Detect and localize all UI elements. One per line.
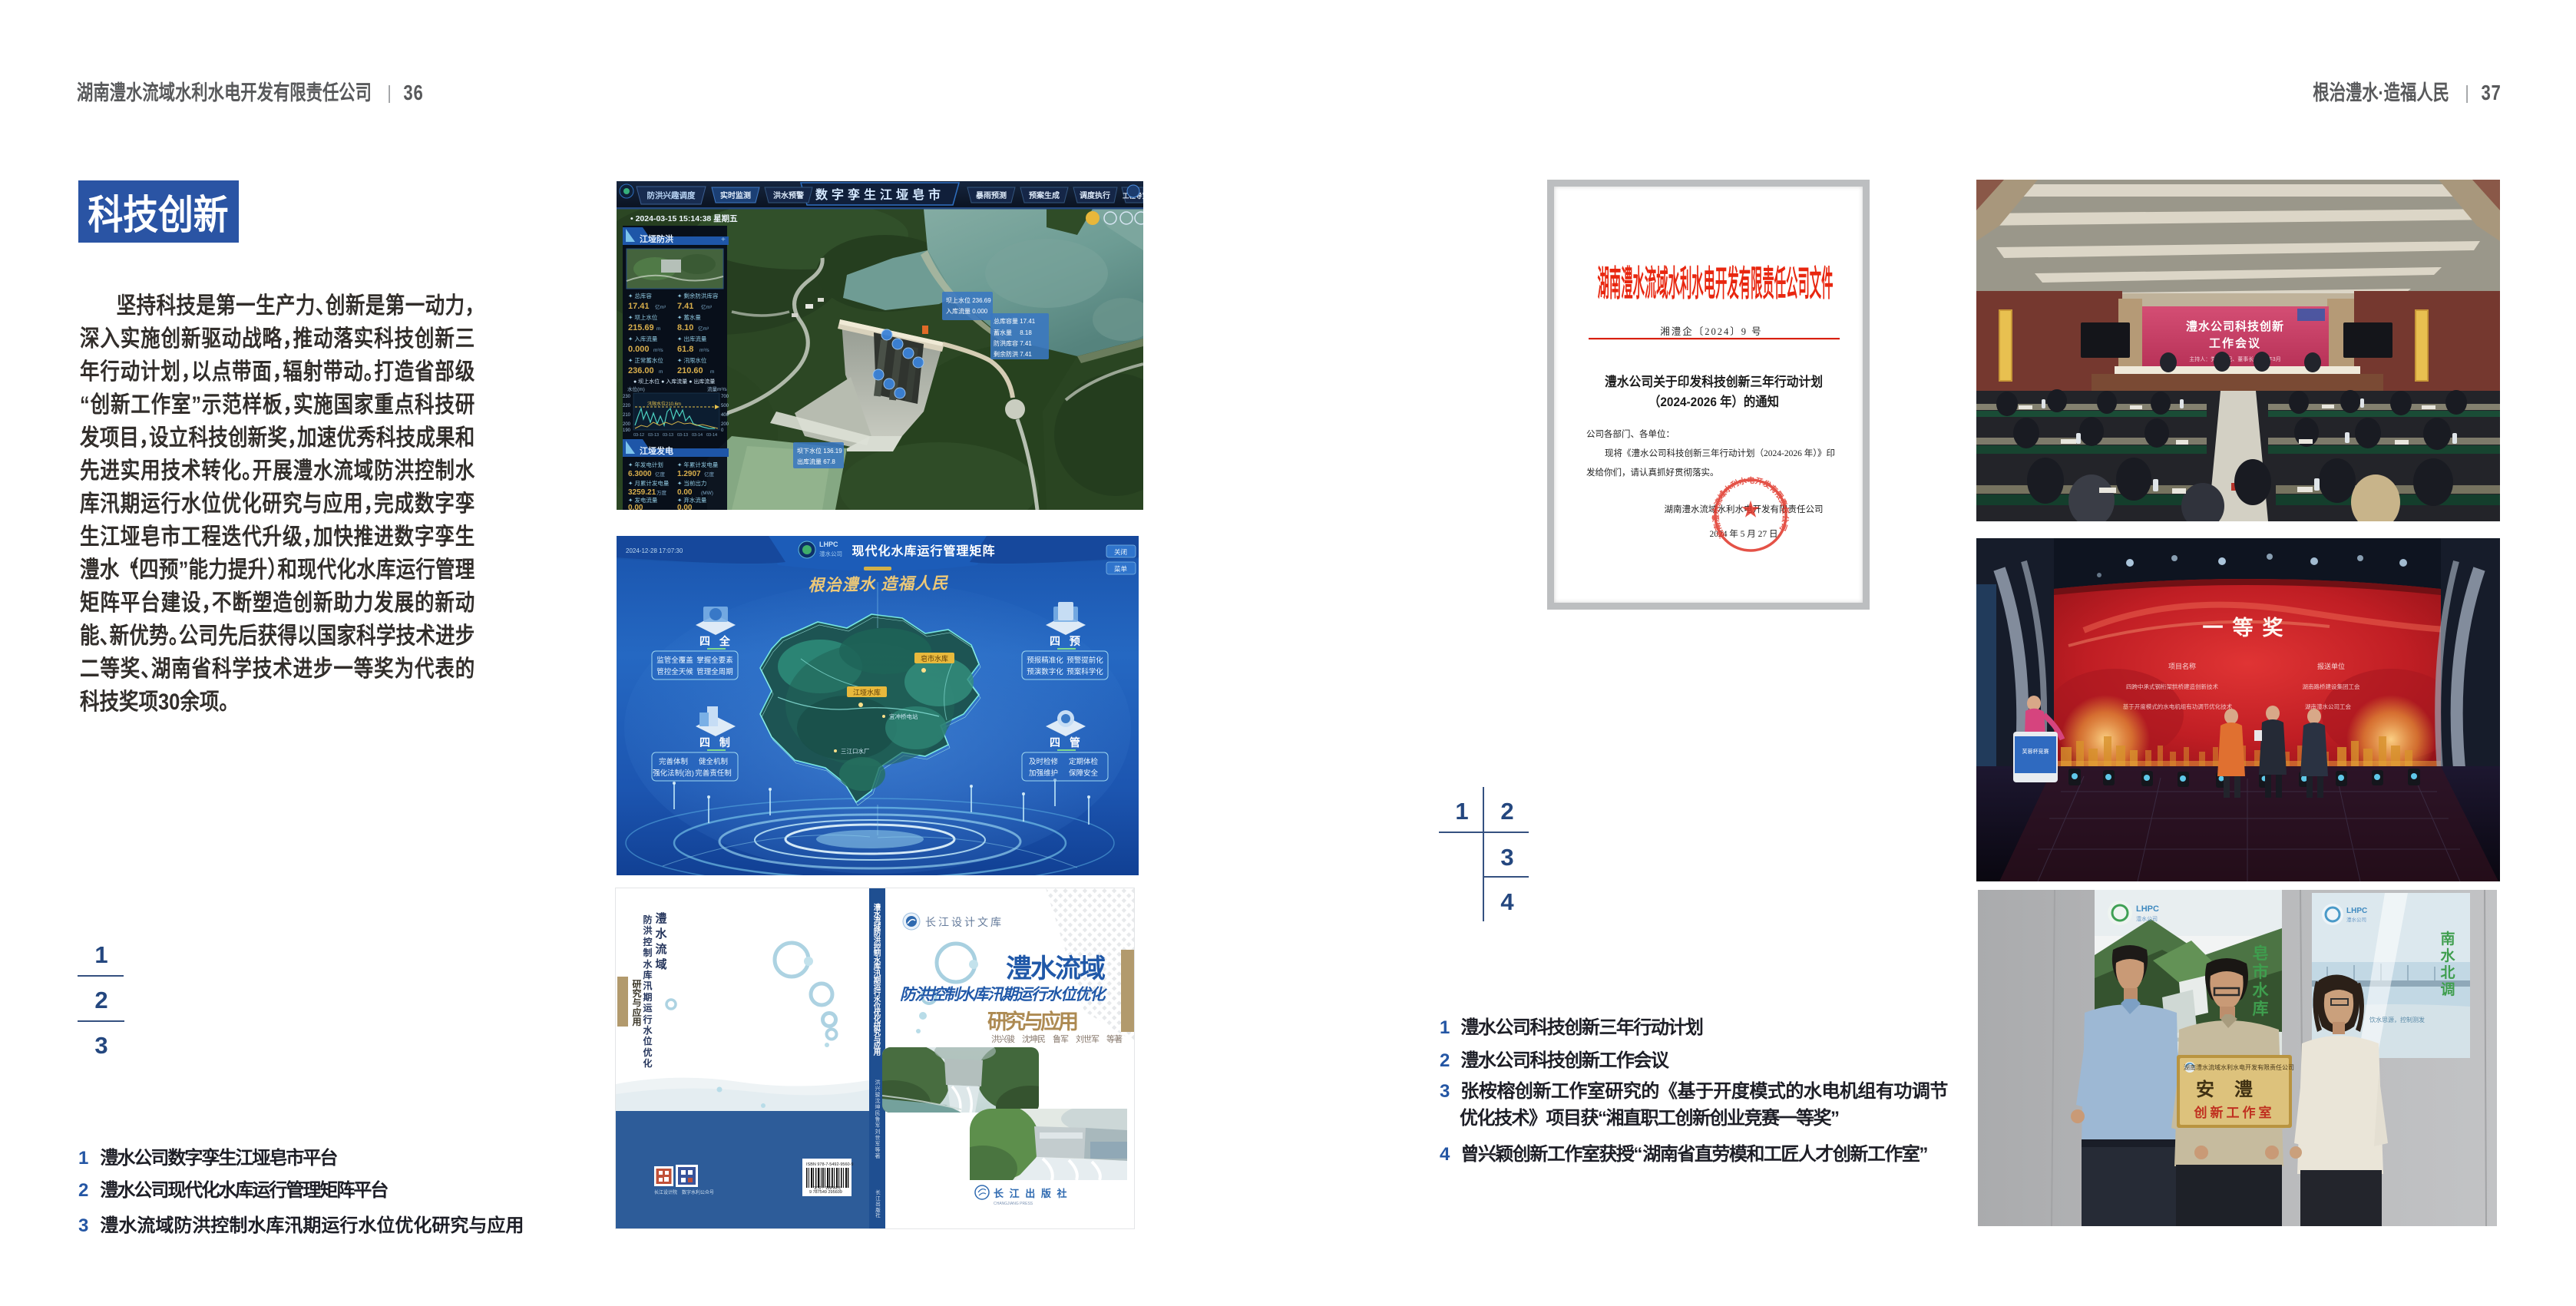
svg-text:03-13: 03-13 — [648, 433, 659, 438]
svg-text:✦ 发电流量: ✦ 发电流量 — [628, 496, 658, 504]
svg-text:● 坝上水位 ● 入库流量 ● 出库流量: ● 坝上水位 ● 入库流量 ● 出库流量 — [633, 378, 715, 385]
svg-text:7.41: 7.41 — [677, 302, 693, 311]
svg-text:入库流量 0.000: 入库流量 0.000 — [946, 307, 988, 315]
svg-text:湖南路桥建设集团工会: 湖南路桥建设集团工会 — [2303, 683, 2360, 690]
svg-text:四 全: 四 全 — [699, 635, 733, 647]
svg-text:根治澧水 造福人民: 根治澧水 造福人民 — [808, 574, 949, 594]
svg-text:LHPC: LHPC — [819, 541, 838, 548]
svg-text:加强维护: 加强维护 — [1029, 769, 1058, 778]
svg-text:项目名称: 项目名称 — [2168, 662, 2196, 670]
svg-text:✦ 入库流量: ✦ 入库流量 — [628, 335, 658, 342]
svg-text:61.8: 61.8 — [677, 345, 693, 354]
svg-text:03-14: 03-14 — [706, 433, 717, 438]
svg-text:湖南澧水公司工会: 湖南澧水公司工会 — [2305, 703, 2351, 710]
svg-text:预警提前化: 预警提前化 — [1066, 656, 1103, 665]
svg-text:湖南澧水流域水利水电开发有限责任公司: 湖南澧水流域水利水电开发有限责任公司 — [2184, 1063, 2294, 1071]
svg-text:3259.21: 3259.21 — [628, 488, 656, 497]
svg-text:LHPC: LHPC — [2136, 904, 2159, 914]
svg-text:ISBN 978-7-5492-9560-9: ISBN 978-7-5492-9560-9 — [806, 1162, 853, 1167]
svg-text:230: 230 — [623, 395, 631, 399]
svg-text:✦ 当前出力: ✦ 当前出力 — [677, 479, 706, 487]
svg-text:总库容量 17.41: 总库容量 17.41 — [994, 317, 1036, 325]
svg-text:四 制: 四 制 — [699, 736, 733, 749]
svg-text:✦ 年累计发电量: ✦ 年累计发电量 — [677, 461, 719, 468]
svg-text:210: 210 — [623, 413, 631, 418]
svg-text:（2024-2026 年）的通知: （2024-2026 年）的通知 — [1648, 394, 1779, 409]
svg-text:m³/s: m³/s — [699, 348, 709, 353]
svg-text:调度执行: 调度执行 — [1080, 190, 1110, 200]
svg-text:✦ 弃水流量: ✦ 弃水流量 — [677, 496, 707, 504]
svg-text:管理全周期: 管理全周期 — [696, 667, 733, 676]
svg-text:✦ 正常蓄水位: ✦ 正常蓄水位 — [628, 356, 663, 364]
svg-text:数字孪生江垭皂市: 数字孪生江垭皂市 — [815, 187, 944, 202]
svg-text:220: 220 — [623, 404, 631, 408]
svg-text:现代化水库运行管理矩阵: 现代化水库运行管理矩阵 — [852, 544, 995, 558]
svg-text:管控全天候: 管控全天候 — [656, 667, 693, 676]
svg-text:400: 400 — [721, 413, 729, 418]
svg-text:03-13: 03-13 — [677, 433, 688, 438]
svg-text:创新工作室: 创新工作室 — [2194, 1105, 2275, 1120]
svg-text:定价：128.00元: 定价：128.00元 — [814, 1185, 841, 1191]
svg-text:公司各部门、各单位：: 公司各部门、各单位： — [1586, 428, 1675, 439]
svg-text:洪水预警: 洪水预警 — [773, 190, 804, 200]
svg-text:m: m — [656, 326, 660, 332]
svg-text:湘澧企〔2024〕9 号: 湘澧企〔2024〕9 号 — [1660, 326, 1762, 337]
svg-text:0.00: 0.00 — [677, 504, 693, 510]
svg-text:关闭: 关闭 — [1114, 548, 1127, 556]
svg-text:水: 水 — [2253, 982, 2270, 1000]
svg-text:亿度: 亿度 — [655, 471, 666, 478]
svg-text:江垭发电: 江垭发电 — [640, 445, 673, 456]
svg-text:+: + — [721, 236, 726, 244]
svg-text:0.00: 0.00 — [628, 504, 643, 510]
svg-text:预案科学化: 预案科学化 — [1066, 667, 1103, 676]
svg-text:江垭水库: 江垭水库 — [853, 688, 881, 696]
svg-text:湖南澧水流域水利水电开发有限责任公司: 湖南澧水流域水利水电开发有限责任公司 — [1665, 504, 1824, 514]
svg-text:一等奖: 一等奖 — [2203, 616, 2293, 640]
svg-text:市: 市 — [2253, 963, 2269, 981]
svg-text:03-14: 03-14 — [692, 433, 703, 438]
svg-text:监管全覆盖: 监管全覆盖 — [656, 656, 693, 665]
svg-text:坝上水位 236.69: 坝上水位 236.69 — [946, 296, 991, 304]
svg-text:万度: 万度 — [656, 489, 667, 496]
svg-text:预报精准化: 预报精准化 — [1027, 656, 1063, 665]
svg-text:17.41: 17.41 — [628, 302, 650, 311]
svg-text:保障安全: 保障安全 — [1069, 769, 1099, 778]
svg-text:03-12: 03-12 — [633, 433, 644, 438]
svg-text:四跨中承式钢桁架拱桥建造创新技术: 四跨中承式钢桁架拱桥建造创新技术 — [2126, 683, 2218, 690]
svg-text:✦ 坝上水位: ✦ 坝上水位 — [628, 313, 658, 321]
svg-text:完善体制: 完善体制 — [659, 757, 688, 766]
svg-text:发给你们，请认真抓好贯彻落实。: 发给你们，请认真抓好贯彻落实。 — [1586, 467, 1719, 478]
svg-text:皂: 皂 — [2253, 945, 2269, 963]
svg-text:北: 北 — [2440, 964, 2455, 981]
svg-text:饮水思源，控制测发: 饮水思源，控制测发 — [2369, 1016, 2425, 1023]
svg-text:长 江 出 版 社: 长 江 出 版 社 — [994, 1188, 1068, 1199]
svg-text:掌握全要素: 掌握全要素 — [696, 656, 733, 665]
svg-text:m: m — [710, 369, 714, 375]
svg-text:安澧: 安澧 — [2196, 1079, 2273, 1100]
svg-text:水: 水 — [2440, 947, 2455, 964]
svg-text:215.69: 215.69 — [628, 323, 654, 332]
svg-text:水位(m): 水位(m) — [627, 385, 645, 392]
svg-text:出库流量 67.8: 出库流量 67.8 — [797, 458, 835, 465]
svg-text:✦ 剩余防洪库容: ✦ 剩余防洪库容 — [677, 292, 719, 299]
svg-text:定期体检: 定期体检 — [1069, 757, 1099, 766]
svg-text:0.000: 0.000 — [628, 345, 650, 354]
svg-text:8.10: 8.10 — [677, 323, 693, 332]
svg-text:m: m — [659, 369, 663, 375]
svg-text:LHPC: LHPC — [2346, 907, 2367, 915]
svg-text:2024-12-28 17:07:30: 2024-12-28 17:07:30 — [626, 547, 683, 554]
svg-text:强化法制(治): 强化法制(治) — [653, 769, 694, 778]
svg-text:✦ 总库容: ✦ 总库容 — [628, 292, 652, 299]
svg-text:CHANGJIANG PRESS: CHANGJIANG PRESS — [994, 1202, 1033, 1206]
svg-text:236.00: 236.00 — [628, 366, 654, 375]
svg-text:三江口水厂: 三江口水厂 — [841, 747, 870, 755]
svg-text:澧水公司: 澧水公司 — [819, 550, 842, 557]
svg-text:汛限水位210.6m: 汛限水位210.6m — [647, 401, 681, 407]
svg-text:✦ 年发电计划: ✦ 年发电计划 — [628, 461, 663, 468]
svg-text:澧水公司科技创新: 澧水公司科技创新 — [2186, 319, 2284, 333]
svg-text:6.3000: 6.3000 — [628, 470, 652, 478]
svg-text:健全机制: 健全机制 — [699, 757, 728, 766]
svg-text:江垭防洪: 江垭防洪 — [640, 233, 673, 244]
svg-text:库: 库 — [2253, 1000, 2269, 1018]
svg-text:完善责任制: 完善责任制 — [695, 769, 732, 778]
svg-text:亿m³: 亿m³ — [698, 325, 709, 332]
svg-text:基于开度模式的水电机组有功调节优化技术: 基于开度模式的水电机组有功调节优化技术 — [2123, 703, 2233, 710]
svg-text:200: 200 — [721, 422, 729, 427]
svg-text:坝下水位 136.19: 坝下水位 136.19 — [797, 447, 842, 455]
svg-text:03-13: 03-13 — [663, 433, 673, 438]
svg-text:防洪库容 7.41: 防洪库容 7.41 — [994, 339, 1032, 347]
svg-text:澧水公司关于印发科技创新三年行动计划: 澧水公司关于印发科技创新三年行动计划 — [1605, 374, 1823, 389]
svg-text:皂市水库: 皂市水库 — [921, 654, 948, 663]
svg-text:流量m³/s: 流量m³/s — [707, 385, 727, 392]
svg-text:(MW): (MW) — [701, 491, 713, 496]
svg-text:500: 500 — [721, 404, 729, 408]
svg-text:亿m³: 亿m³ — [655, 303, 666, 310]
svg-text:剩余防洪 7.41: 剩余防洪 7.41 — [994, 350, 1032, 358]
svg-text:暴雨预测: 暴雨预测 — [975, 190, 1007, 200]
svg-text:工作会议: 工作会议 — [2209, 336, 2261, 350]
svg-text:1.2907: 1.2907 — [677, 470, 701, 478]
svg-text:✦ 汛限水位: ✦ 汛限水位 — [677, 356, 707, 364]
svg-text:防洪兴趣调度: 防洪兴趣调度 — [647, 190, 696, 200]
svg-text:700: 700 — [721, 395, 729, 399]
svg-text:210.60: 210.60 — [677, 366, 703, 375]
svg-text:长江设计文库: 长江设计文库 — [925, 916, 1004, 928]
svg-text:预案生成: 预案生成 — [1029, 190, 1060, 200]
svg-text:实时监测: 实时监测 — [720, 190, 751, 200]
svg-text:报送单位: 报送单位 — [2317, 662, 2345, 670]
svg-text:亿m³: 亿m³ — [701, 303, 713, 310]
svg-text:宜冲桥电站: 宜冲桥电站 — [889, 713, 918, 720]
svg-text:亿度: 亿度 — [704, 471, 715, 478]
svg-text:澧水公司: 澧水公司 — [2136, 915, 2158, 922]
svg-text:长江设计院 数字水利公众号: 长江设计院 数字水利公众号 — [654, 1189, 714, 1195]
svg-text:蓄水量 8.18: 蓄水量 8.18 — [994, 329, 1032, 336]
svg-text:四 管: 四 管 — [1050, 736, 1083, 749]
svg-text:现将《澧水公司科技创新三年行动计划（2024-2026 年）: 现将《澧水公司科技创新三年行动计划（2024-2026 年）》印 — [1605, 448, 1835, 458]
svg-text:四 预: 四 预 — [1050, 635, 1083, 647]
svg-text:澧水公司: 澧水公司 — [2346, 916, 2366, 923]
svg-text:预演数字化: 预演数字化 — [1027, 667, 1063, 676]
svg-text:湖南澧水流域水利水电开发有限责任公司文件: 湖南澧水流域水利水电开发有限责任公司文件 — [1598, 264, 1834, 303]
svg-text:及时检修: 及时检修 — [1029, 757, 1059, 766]
svg-text:调: 调 — [2440, 981, 2455, 998]
svg-text:0.00: 0.00 — [677, 488, 693, 497]
svg-text:• 2024-03-15 15:14:38 星期五: • 2024-03-15 15:14:38 星期五 — [630, 213, 738, 223]
svg-text:菜单: 菜单 — [1114, 565, 1128, 573]
svg-text:芙蓉杯竞赛: 芙蓉杯竞赛 — [2022, 748, 2049, 755]
svg-text:m³/s: m³/s — [653, 348, 663, 353]
svg-text:✦ 出库流量: ✦ 出库流量 — [677, 335, 707, 342]
svg-text:✦ 蓄水量: ✦ 蓄水量 — [677, 313, 701, 321]
svg-text:南: 南 — [2440, 931, 2455, 947]
svg-text:✦ 月累计发电量: ✦ 月累计发电量 — [628, 479, 670, 487]
svg-text:190: 190 — [623, 428, 631, 433]
svg-text:200: 200 — [623, 422, 631, 427]
